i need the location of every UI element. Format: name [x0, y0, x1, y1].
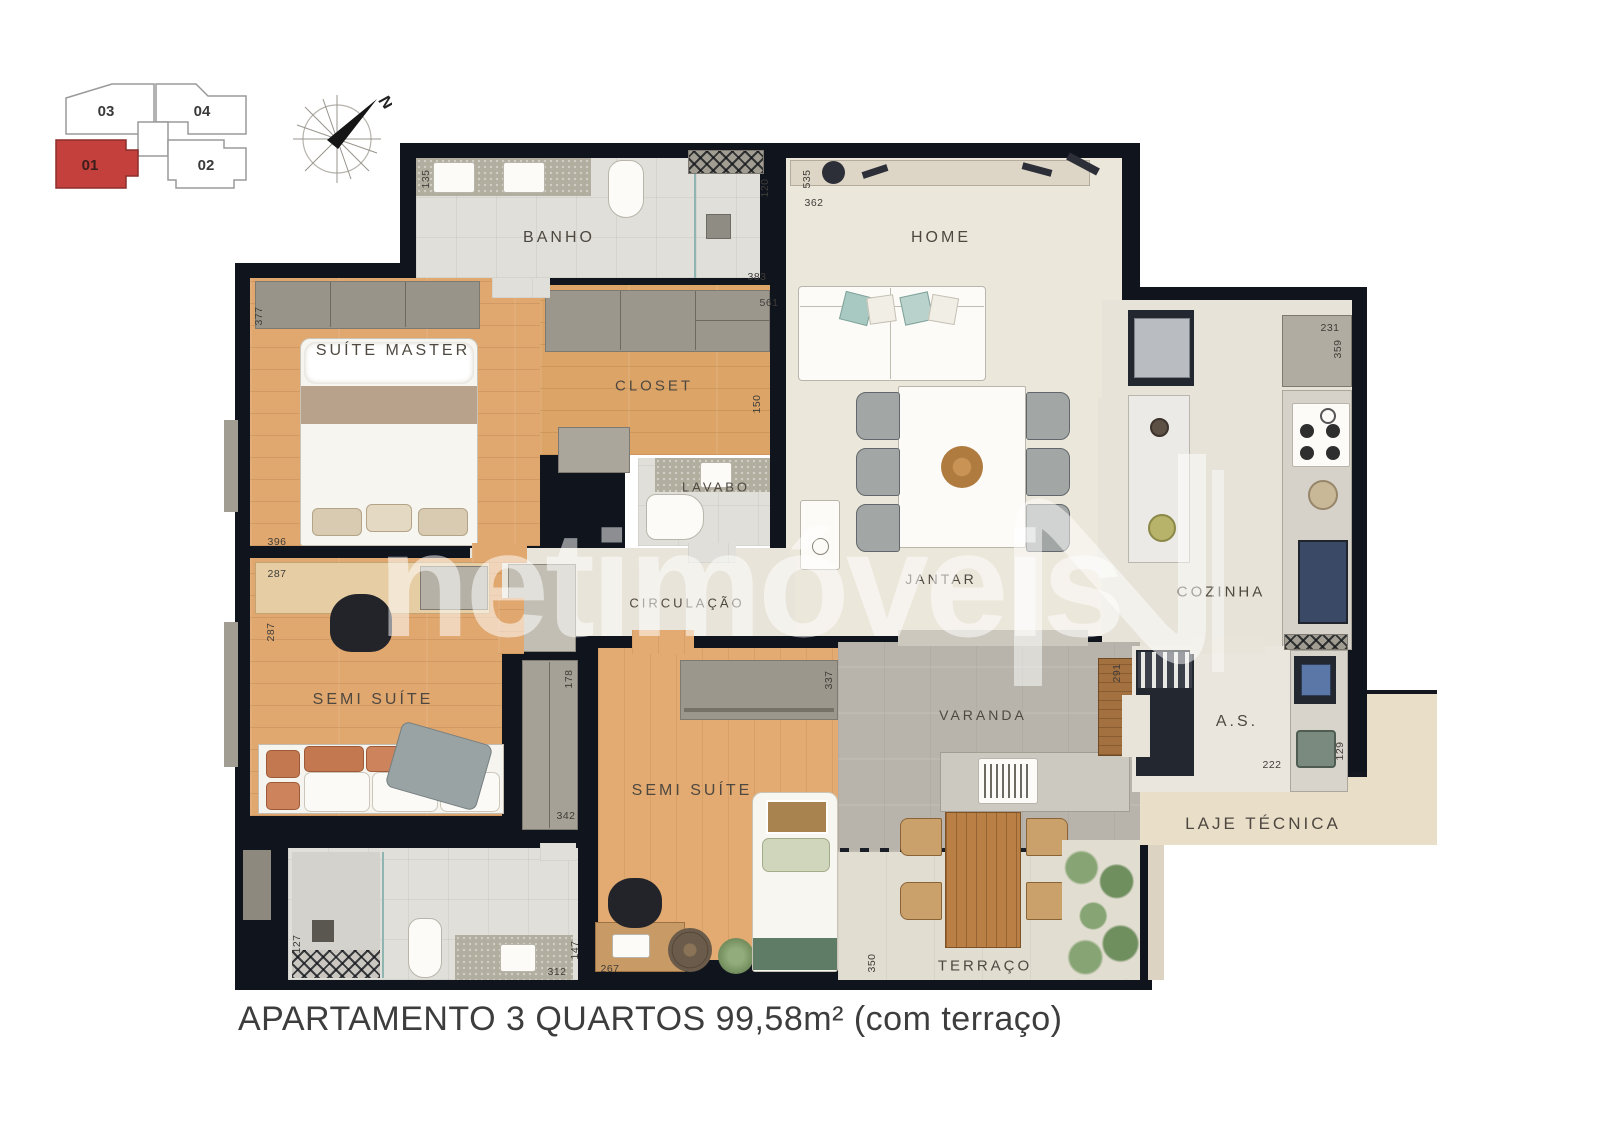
laundry-sink — [1296, 730, 1336, 768]
cabinet — [1284, 634, 1348, 650]
dining-chair — [856, 392, 900, 440]
office-chair — [330, 594, 392, 652]
burner — [1326, 446, 1340, 460]
outdoor-chair — [900, 818, 942, 856]
wardrobe-handle — [684, 708, 834, 712]
bed-foot-pillow — [418, 508, 468, 536]
door-opening — [492, 278, 550, 298]
door-opening — [540, 843, 576, 861]
closet-shelf-line — [696, 320, 769, 321]
burner-knob — [1320, 408, 1336, 424]
bed-headboard-art — [766, 800, 828, 834]
plant-hedge — [1062, 840, 1140, 978]
plant — [718, 938, 754, 974]
burner — [1300, 446, 1314, 460]
wardrobe-split — [549, 662, 550, 828]
bed-foot-pillow — [312, 508, 362, 536]
sofa-pillow-white — [866, 294, 896, 324]
bed-pillow — [762, 838, 830, 872]
door-opening — [498, 598, 524, 654]
door-opening — [1122, 695, 1150, 757]
window-sill — [1148, 845, 1164, 980]
watermark-logo-n — [990, 440, 1240, 700]
dresser — [558, 427, 630, 473]
wardrobe-split — [330, 282, 331, 327]
side-table — [800, 500, 840, 570]
sink — [503, 162, 545, 193]
office-chair — [608, 878, 662, 928]
decor-globe — [822, 161, 845, 184]
fridge-front — [1134, 318, 1190, 378]
dining-chair — [856, 504, 900, 552]
bed-foot-pillow — [366, 504, 412, 532]
passage — [765, 555, 795, 633]
burner — [1300, 424, 1314, 438]
kitchen-cabinet — [1282, 315, 1352, 387]
desk-shelf — [420, 566, 488, 610]
bed-band — [301, 386, 477, 424]
dining-chair — [856, 448, 900, 496]
bed-blanket-green — [753, 938, 837, 970]
laptop — [612, 934, 650, 958]
shower-head — [312, 920, 334, 942]
side-table-decor — [812, 538, 829, 555]
outdoor-table — [945, 812, 1021, 948]
closet-cabinets — [545, 290, 770, 352]
kitchen-sink — [1298, 540, 1348, 624]
door-opening — [688, 543, 736, 563]
shower-base — [292, 950, 380, 978]
cabinet — [688, 150, 764, 174]
closet-split — [620, 291, 621, 350]
table-centerpiece — [941, 446, 983, 488]
outdoor-chair — [900, 882, 942, 920]
bed-pillow-zone — [304, 342, 474, 384]
island-faucet — [1150, 418, 1169, 437]
wardrobe — [522, 660, 578, 830]
window-sill — [243, 850, 271, 920]
shower-glass — [382, 852, 384, 978]
pillow-orange — [266, 750, 300, 778]
laje-tecnica-slab — [1367, 690, 1437, 845]
pillow-orange — [304, 746, 364, 772]
washer-window — [1301, 664, 1331, 696]
door-opening — [632, 630, 694, 654]
shower-head — [706, 214, 731, 239]
burner — [1326, 424, 1340, 438]
floor-plan: BANHOHOMESUÍTE MASTERCLOSETLAVABOJANTARC… — [0, 0, 1600, 1131]
toilet — [608, 160, 644, 218]
round-rug — [668, 928, 712, 972]
toilet — [646, 494, 704, 540]
sofa-pillow-white — [928, 294, 959, 325]
sink — [500, 944, 536, 972]
sink — [700, 462, 732, 488]
floorplan-page: 03 04 01 02 N — [0, 0, 1600, 1131]
prep-bowl — [1308, 480, 1338, 510]
window-sill — [224, 622, 238, 767]
wardrobe-split — [405, 282, 406, 327]
caption-title: APARTAMENTO 3 QUARTOS 99,58m² (com terra… — [238, 1000, 1062, 1039]
pillow-white — [304, 772, 370, 812]
dining-chair — [1026, 392, 1070, 440]
window-sill — [224, 420, 238, 512]
grill-grate — [984, 764, 1032, 798]
toilet — [408, 918, 442, 978]
pillow-orange — [266, 782, 300, 810]
door-opening — [472, 543, 527, 563]
sink — [433, 162, 475, 193]
shower-glass — [694, 160, 696, 278]
wardrobe — [255, 281, 480, 329]
